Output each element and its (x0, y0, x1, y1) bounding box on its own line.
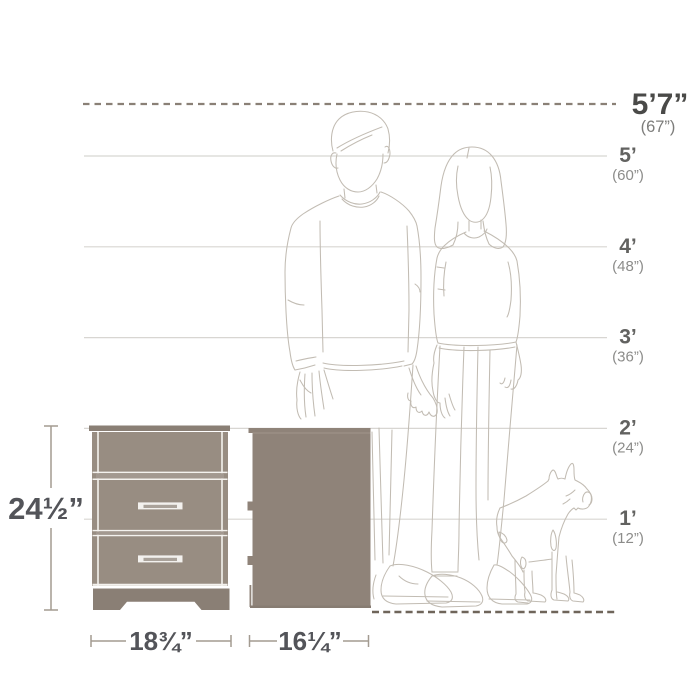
svg-text:(24”): (24”) (612, 440, 644, 457)
svg-text:5’7”: 5’7” (632, 88, 689, 121)
svg-text:18¾”: 18¾” (129, 626, 193, 656)
svg-text:(60”): (60”) (612, 167, 644, 184)
svg-text:3’: 3’ (619, 326, 637, 349)
svg-text:2’: 2’ (619, 417, 637, 440)
svg-text:1’: 1’ (619, 507, 637, 530)
svg-text:24½”: 24½” (8, 491, 84, 526)
svg-text:5’: 5’ (619, 144, 637, 167)
svg-text:(48”): (48”) (612, 258, 644, 275)
svg-text:(12”): (12”) (612, 530, 644, 547)
svg-text:4’: 4’ (619, 235, 637, 258)
svg-text:16¼”: 16¼” (278, 626, 342, 656)
svg-text:(36”): (36”) (612, 349, 644, 366)
svg-text:(67”): (67”) (641, 118, 676, 136)
